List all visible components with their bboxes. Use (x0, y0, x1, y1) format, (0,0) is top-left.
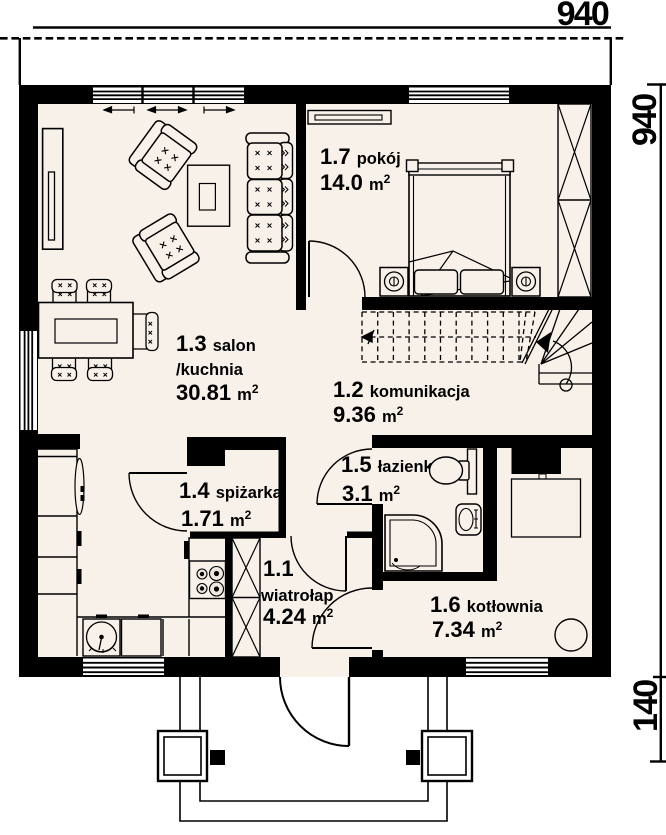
svg-text:940: 940 (557, 0, 609, 33)
svg-text:wiatrołap: wiatrołap (260, 587, 333, 605)
svg-text:940: 940 (626, 94, 664, 146)
svg-text:/kuchnia: /kuchnia (176, 361, 244, 379)
svg-text:1.1: 1.1 (263, 556, 294, 581)
svg-text:140: 140 (627, 680, 665, 732)
